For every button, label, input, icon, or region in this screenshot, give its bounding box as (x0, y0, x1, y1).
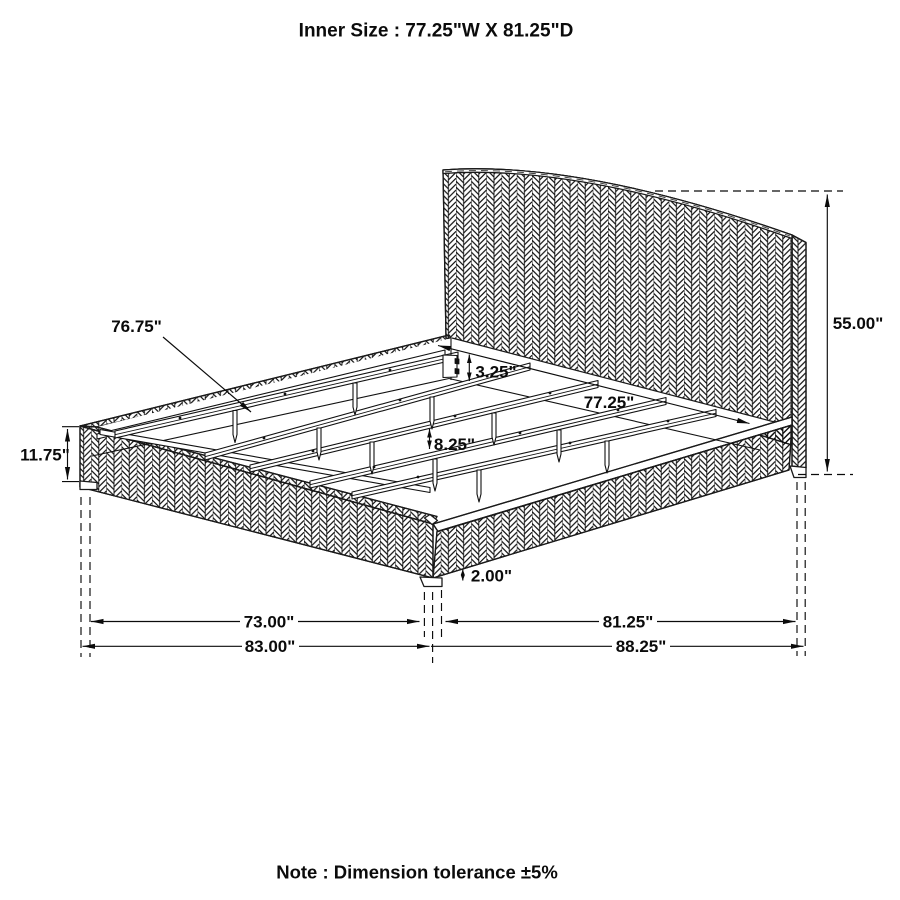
svg-text:Inner Size : 77.25"W X 81.25"D: Inner Size : 77.25"W X 81.25"D (299, 21, 574, 42)
svg-text:83.00": 83.00" (245, 637, 296, 656)
svg-text:55.00": 55.00" (833, 314, 884, 333)
svg-text:11.75": 11.75" (20, 446, 70, 465)
svg-text:8.25": 8.25" (434, 435, 475, 454)
svg-text:73.00": 73.00" (244, 613, 295, 632)
svg-text:2.00": 2.00" (471, 567, 512, 586)
svg-text:76.75": 76.75" (111, 317, 162, 336)
svg-text:Note : Dimension tolerance ±5%: Note : Dimension tolerance ±5% (276, 862, 558, 883)
svg-text:88.25": 88.25" (616, 637, 667, 656)
svg-text:77.25": 77.25" (584, 393, 635, 412)
svg-text:81.25": 81.25" (603, 613, 654, 632)
svg-text:3.25": 3.25" (475, 363, 516, 382)
